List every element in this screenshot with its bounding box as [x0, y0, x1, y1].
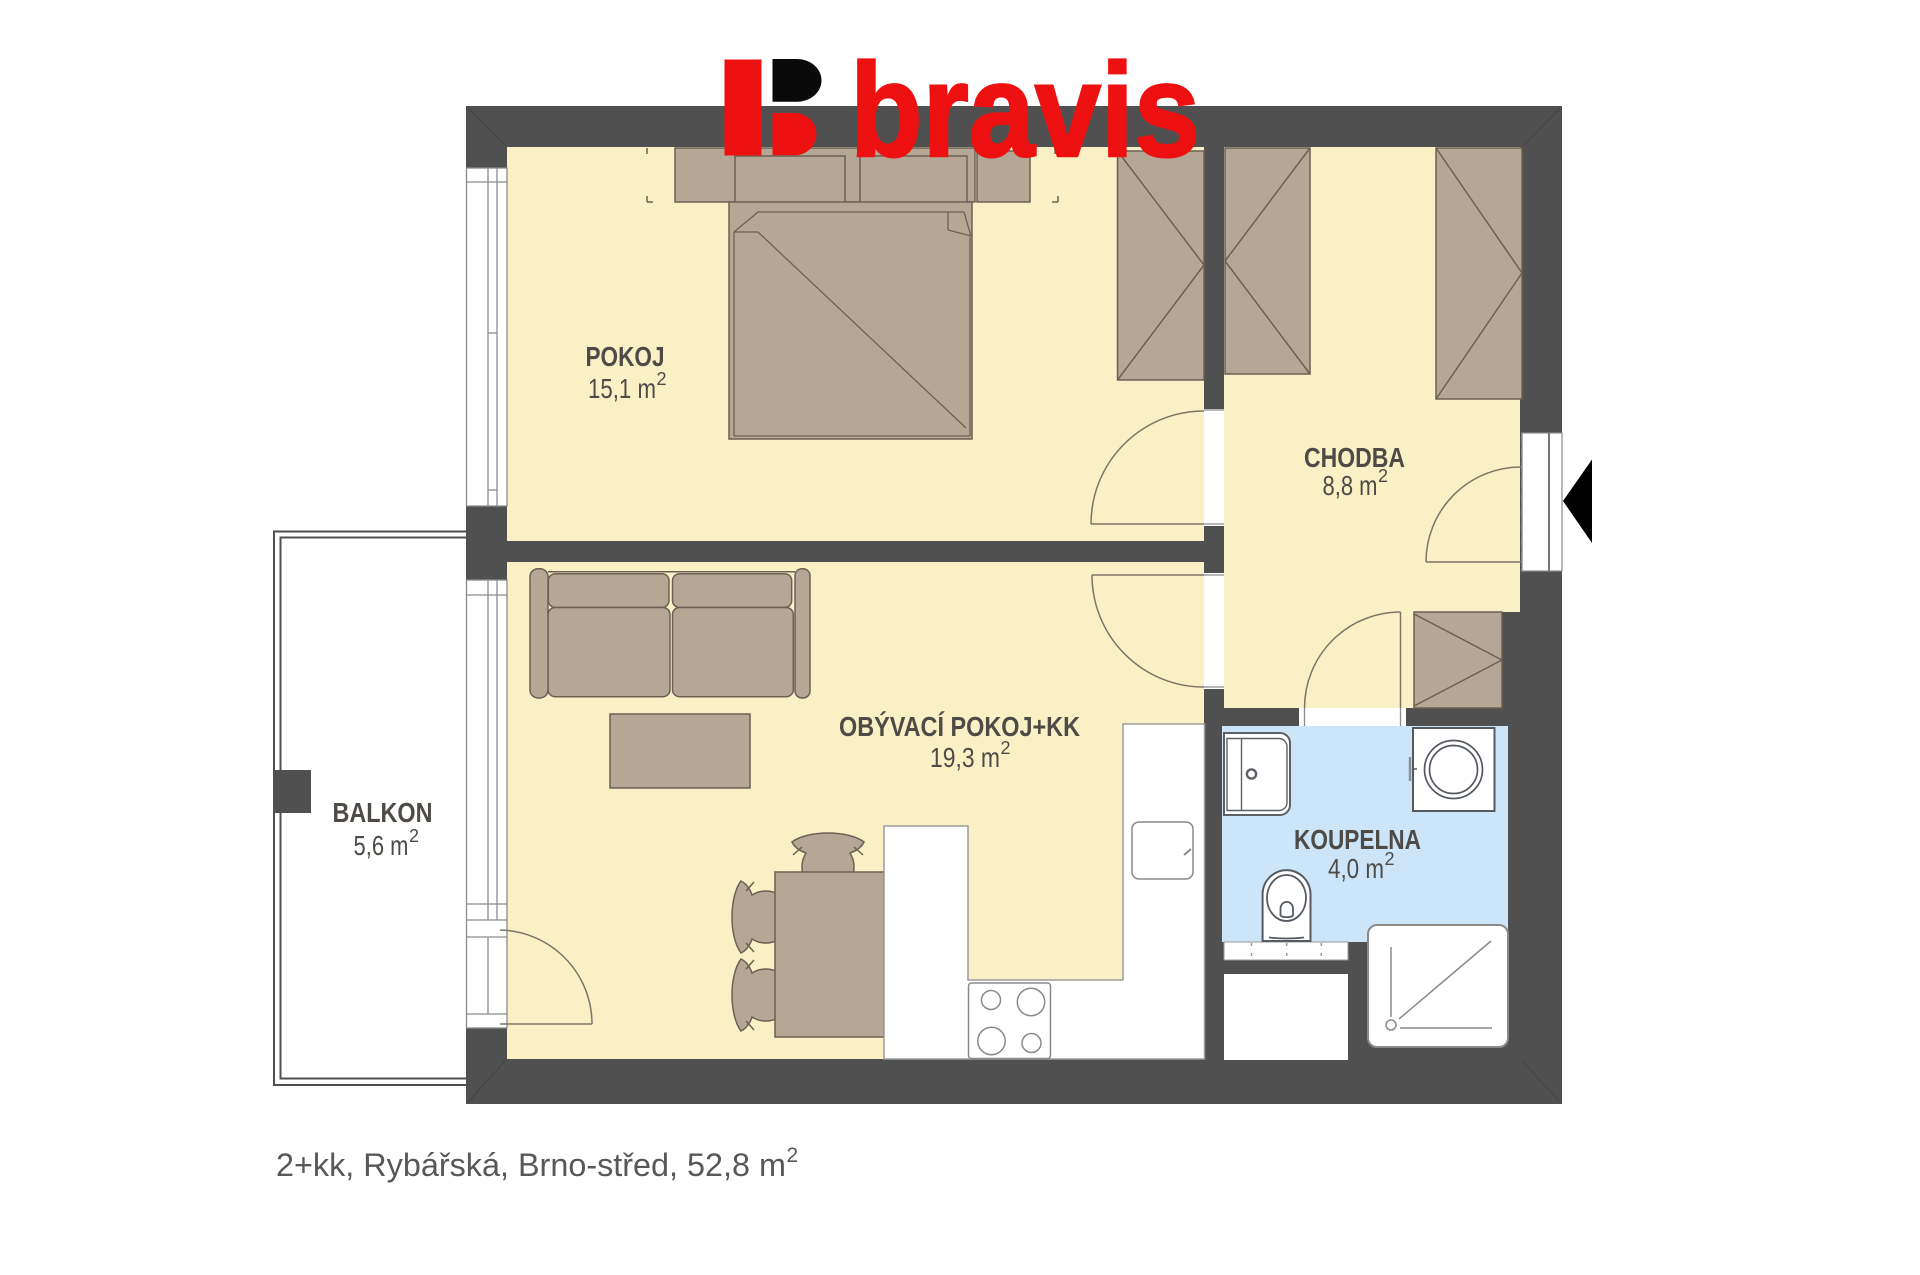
- svg-text:2+kk, Rybářská, Brno-střed, 52: 2+kk, Rybářská, Brno-střed, 52,8 m: [276, 1147, 786, 1183]
- svg-text:2: 2: [1378, 466, 1388, 486]
- svg-text:KOUPELNA: KOUPELNA: [1294, 824, 1421, 855]
- svg-text:2: 2: [787, 1144, 799, 1167]
- svg-text:2: 2: [1385, 849, 1395, 869]
- svg-text:bravis: bravis: [850, 37, 1200, 185]
- svg-text:5,6 m: 5,6 m: [354, 830, 409, 861]
- svg-text:OBÝVACÍ POKOJ+KK: OBÝVACÍ POKOJ+KK: [839, 711, 1080, 742]
- svg-text:BALKON: BALKON: [333, 797, 433, 828]
- svg-text:2: 2: [409, 826, 419, 846]
- svg-text:19,3 m: 19,3 m: [930, 742, 1000, 773]
- svg-text:4,0 m: 4,0 m: [1328, 853, 1384, 884]
- svg-text:2: 2: [1001, 738, 1011, 758]
- svg-text:2: 2: [657, 369, 667, 389]
- svg-text:CHODBA: CHODBA: [1304, 442, 1405, 473]
- svg-text:POKOJ: POKOJ: [586, 341, 665, 372]
- svg-text:8,8 m: 8,8 m: [1323, 470, 1378, 501]
- svg-text:15,1 m: 15,1 m: [588, 373, 656, 404]
